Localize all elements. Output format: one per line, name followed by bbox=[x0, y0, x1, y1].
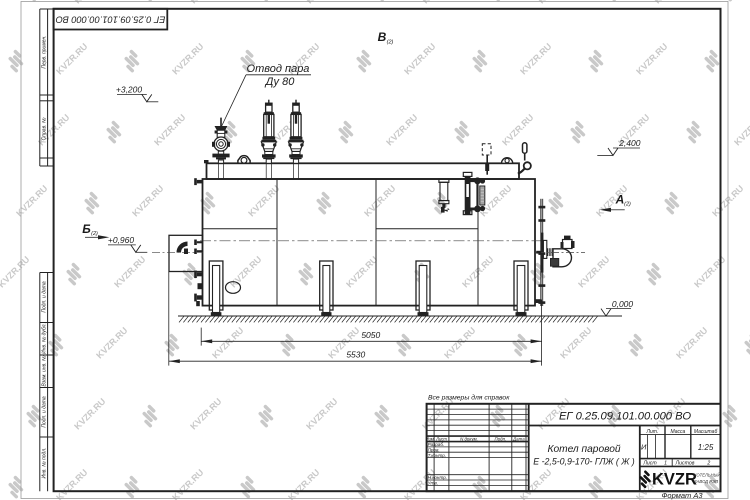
svg-text:ЕГ 0.25.09.101.00.000 ВО: ЕГ 0.25.09.101.00.000 ВО bbox=[56, 15, 166, 25]
svg-text:Инв. № дубл.: Инв. № дубл. bbox=[41, 323, 47, 354]
svg-text:Котел паровой: Котел паровой bbox=[547, 444, 620, 455]
svg-text:Масштаб: Масштаб bbox=[694, 429, 718, 435]
svg-text:Взам. инв. №: Взам. инв. № bbox=[41, 355, 47, 387]
svg-text:Формат А3: Формат А3 bbox=[661, 491, 703, 500]
svg-text:Справ. №: Справ. № bbox=[41, 117, 47, 140]
svg-text:Дата: Дата bbox=[512, 436, 525, 441]
svg-text:1: 1 bbox=[664, 461, 667, 467]
svg-text:Подп.: Подп. bbox=[495, 436, 507, 441]
svg-text:5050: 5050 bbox=[361, 330, 380, 340]
svg-text:Н.контр.: Н.контр. bbox=[428, 475, 447, 480]
svg-text:5530: 5530 bbox=[346, 350, 365, 360]
svg-text:2,400: 2,400 bbox=[618, 138, 641, 148]
svg-text:Подп. и дата: Подп. и дата bbox=[41, 281, 47, 313]
svg-text:ЕГ 0.25.09.101.00.000 ВО: ЕГ 0.25.09.101.00.000 ВО bbox=[559, 410, 691, 422]
svg-text:Лист: Лист bbox=[435, 436, 447, 441]
svg-text:+0,960: +0,960 bbox=[108, 235, 135, 245]
svg-text:Лист: Лист bbox=[642, 461, 657, 467]
svg-text:Масса: Масса bbox=[671, 429, 686, 435]
svg-text:Разраб.: Разраб. bbox=[428, 442, 445, 447]
svg-text:Отвод пара: Отвод пара bbox=[247, 63, 310, 75]
svg-text:Утв.: Утв. bbox=[428, 481, 438, 486]
svg-text:(2): (2) bbox=[387, 40, 394, 46]
svg-text:Б: Б bbox=[82, 222, 91, 236]
svg-text:В: В bbox=[378, 30, 387, 44]
svg-text:Ду 80: Ду 80 bbox=[264, 76, 296, 88]
svg-text:Все размеры для справок: Все размеры для справок bbox=[428, 394, 510, 402]
svg-text:Листов: Листов bbox=[675, 461, 695, 467]
svg-text:2: 2 bbox=[706, 461, 710, 467]
svg-text:+3,200: +3,200 bbox=[116, 85, 143, 95]
svg-text:Е -2,5-0,9-170- ГЛЖ ( Ж ): Е -2,5-0,9-170- ГЛЖ ( Ж ) bbox=[533, 457, 635, 467]
svg-text:KVZR: KVZR bbox=[652, 471, 697, 489]
svg-text:Изм.: Изм. bbox=[426, 436, 435, 441]
svg-text:(2): (2) bbox=[624, 202, 631, 208]
svg-text:Инв. № подл.: Инв. № подл. bbox=[41, 447, 47, 478]
svg-text:0,000: 0,000 bbox=[612, 299, 634, 309]
svg-text:1:25: 1:25 bbox=[698, 443, 714, 452]
svg-text:Т.контр.: Т.контр. bbox=[428, 453, 447, 458]
svg-text:Перв. примен.: Перв. примен. bbox=[41, 35, 47, 68]
svg-text:ЗАВОД РЭП: ЗАВОД РЭП bbox=[694, 479, 719, 484]
svg-text:Лит.: Лит. bbox=[646, 429, 659, 435]
svg-text:Подп. и дата: Подп. и дата bbox=[41, 396, 47, 428]
svg-text:И: И bbox=[641, 443, 647, 452]
svg-text:N докум.: N докум. bbox=[460, 436, 478, 441]
svg-text:А: А bbox=[615, 193, 625, 207]
svg-text:Пров.: Пров. bbox=[428, 447, 440, 452]
svg-text:(2): (2) bbox=[91, 231, 98, 237]
svg-text:КОТЕЛЬНЫЙ: КОТЕЛЬНЫЙ bbox=[694, 473, 720, 478]
